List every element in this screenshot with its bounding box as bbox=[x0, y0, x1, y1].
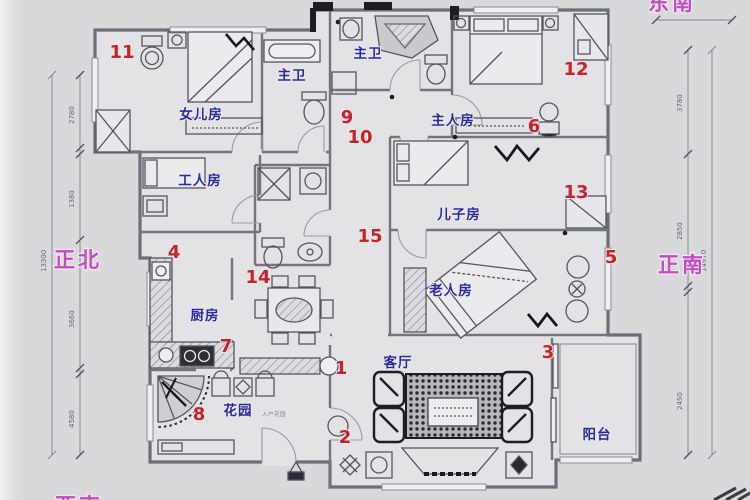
elder-wardrobe-strip bbox=[404, 268, 426, 332]
room-label-bath-center: 主卫 bbox=[354, 45, 383, 62]
marker-13: 13 bbox=[563, 182, 588, 203]
marker-11: 11 bbox=[109, 42, 134, 63]
dim-left-3: 3660 bbox=[68, 310, 76, 328]
dim-left-4: 4580 bbox=[68, 410, 76, 428]
floor-plan-photo: 13300 2780 1380 3660 4580 3780 2850 2450… bbox=[0, 0, 750, 500]
marker-2: 2 bbox=[339, 427, 352, 448]
dim-left-2: 1380 bbox=[68, 190, 76, 208]
stove-icon bbox=[180, 346, 214, 366]
marker-5: 5 bbox=[605, 247, 618, 268]
direction-label-bottom-partial: 西南 bbox=[55, 494, 103, 500]
master-bed-icon bbox=[454, 16, 558, 84]
marker-14: 14 bbox=[245, 267, 270, 288]
dim-left-1: 2780 bbox=[68, 106, 76, 124]
dim-right-1: 3780 bbox=[676, 94, 684, 112]
floor-plan-drawing: 13300 2780 1380 3660 4580 3780 2850 2450… bbox=[0, 0, 750, 500]
room-label-son: 儿子房 bbox=[436, 206, 481, 223]
marker-4: 4 bbox=[168, 242, 181, 263]
marker-7: 7 bbox=[220, 336, 233, 357]
dim-right-2: 2850 bbox=[676, 222, 684, 240]
marker-9: 9 bbox=[341, 107, 354, 128]
entry-bench-icon bbox=[240, 357, 338, 375]
entry-closet-icon bbox=[96, 110, 130, 152]
room-label-kitchen: 厨房 bbox=[191, 307, 220, 324]
marker-15: 15 bbox=[357, 226, 382, 247]
marker-8: 8 bbox=[193, 404, 206, 425]
marker-1: 1 bbox=[335, 358, 348, 379]
room-label-bath-left: 主卫 bbox=[278, 67, 307, 84]
marker-10: 10 bbox=[347, 127, 372, 148]
room-label-daughter: 女儿房 bbox=[179, 106, 223, 123]
dim-right-3: 2450 bbox=[676, 392, 684, 410]
master-wardrobe-icon bbox=[574, 14, 608, 60]
room-label-master: 主人房 bbox=[431, 112, 475, 129]
marker-12: 12 bbox=[563, 59, 588, 80]
marker-3: 3 bbox=[542, 342, 555, 363]
room-label-living: 客厅 bbox=[383, 354, 413, 371]
direction-label-southeast: 东南 bbox=[648, 0, 696, 15]
room-label-worker: 工人房 bbox=[178, 172, 222, 189]
son-bed-icon bbox=[394, 141, 468, 185]
direction-label-north: 正北 bbox=[54, 248, 102, 272]
bathtub-icon bbox=[264, 40, 320, 62]
entry-garden-note: 入户花园 bbox=[262, 410, 286, 418]
room-label-garden: 花园 bbox=[224, 402, 253, 419]
direction-label-south: 正南 bbox=[658, 253, 706, 277]
room-label-balcony: 阳台 bbox=[583, 426, 612, 443]
dim-left-total: 13300 bbox=[40, 250, 48, 272]
marker-6: 6 bbox=[528, 116, 541, 137]
living-rug-icon bbox=[406, 374, 502, 438]
paper-left-edge bbox=[0, 0, 26, 500]
room-label-elder: 老人房 bbox=[429, 282, 473, 299]
